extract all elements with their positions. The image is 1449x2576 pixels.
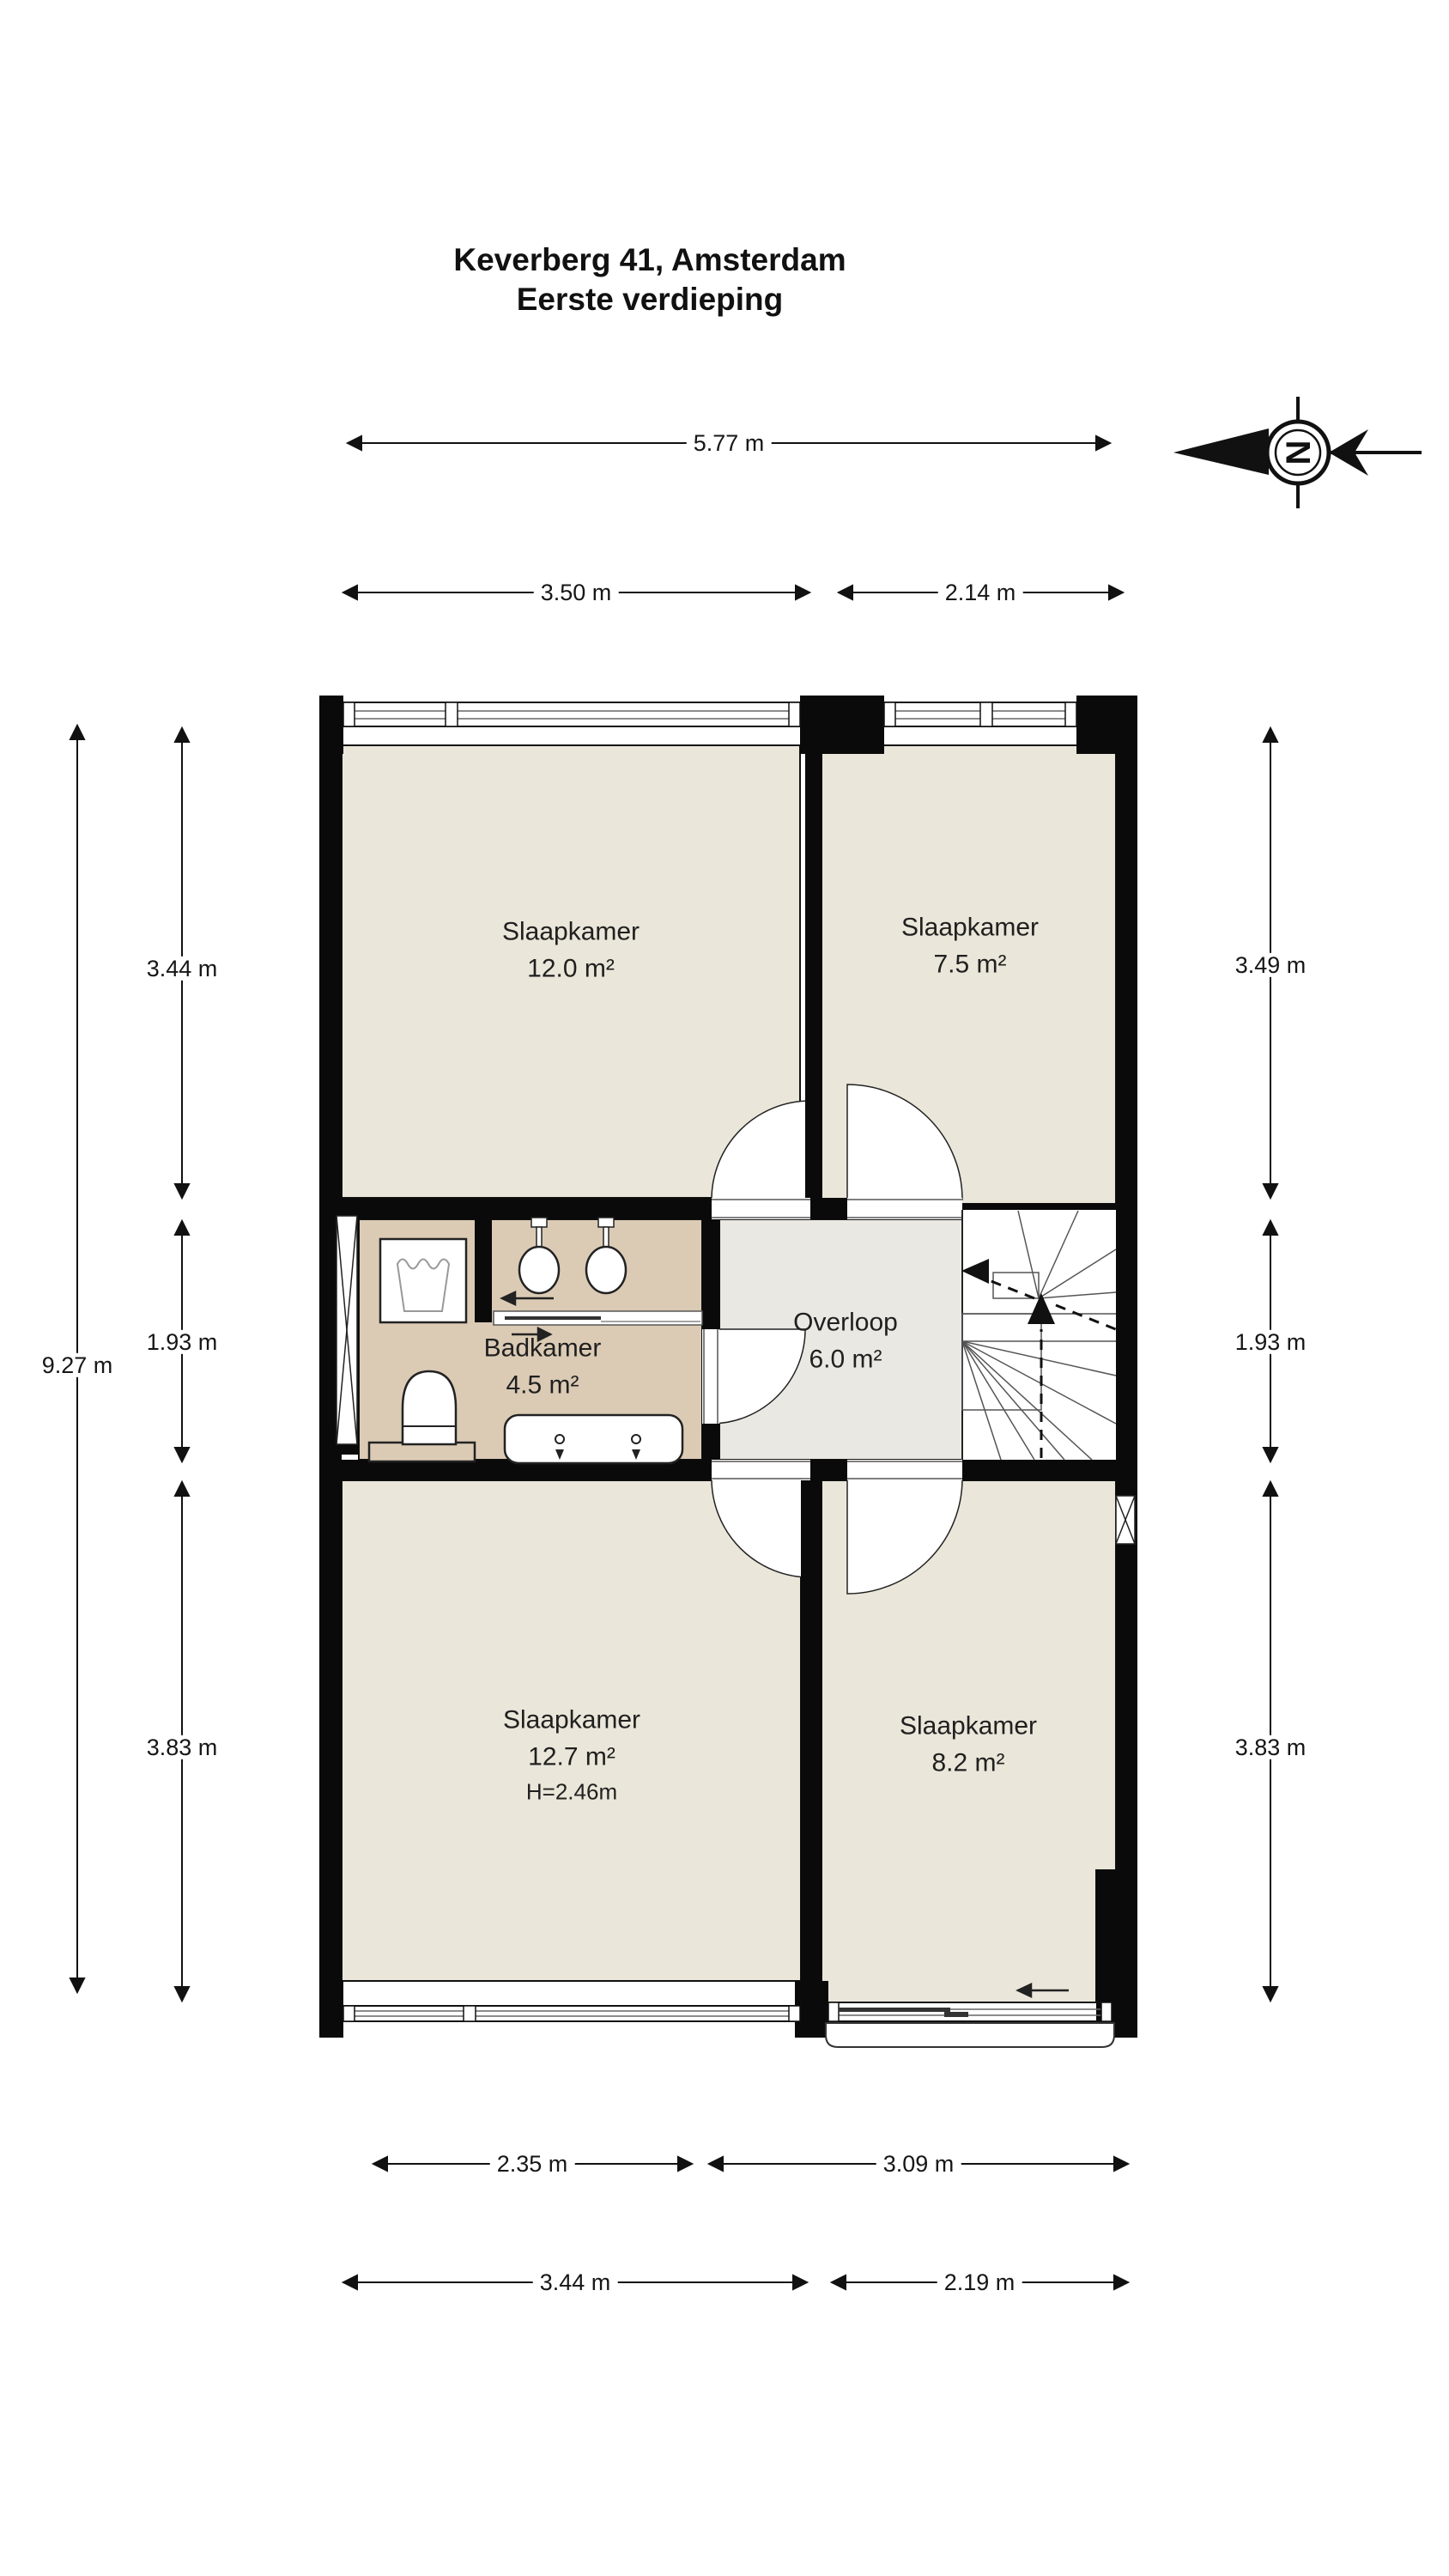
room-area-bedroom-bottom-right: 8.2 m² bbox=[931, 1749, 1004, 1777]
room-label-bedroom-top-right: Slaapkamer bbox=[901, 914, 1039, 942]
floorplan-drawing: N bbox=[0, 0, 1449, 2576]
pillar-top-middle bbox=[800, 696, 884, 754]
dim-top-right: 2.14 m bbox=[938, 580, 1023, 605]
room-area-bedroom-top-right: 7.5 m² bbox=[933, 951, 1006, 979]
wall-stairs-top-thin bbox=[962, 1204, 1116, 1210]
page-title: Keverberg 41, Amsterdam bbox=[453, 242, 846, 278]
wall-strip-top-a bbox=[342, 1198, 712, 1219]
bathtub-icon bbox=[505, 1415, 682, 1463]
wall-right bbox=[1116, 696, 1137, 1870]
pillar-bottom-left bbox=[319, 1981, 343, 2038]
room-label-bathroom: Badkamer bbox=[484, 1334, 602, 1363]
wall-bathroom-right-lower bbox=[702, 1424, 719, 1460]
room-label-bedroom-bottom-right: Slaapkamer bbox=[900, 1712, 1037, 1741]
room-area-bathroom: 4.5 m² bbox=[506, 1371, 579, 1400]
wall-strip-bottom-b bbox=[810, 1460, 847, 1480]
wall-bathroom-right-upper bbox=[702, 1219, 719, 1329]
wall-bathroom-inner bbox=[475, 1219, 492, 1322]
window-bottom-left bbox=[343, 2006, 800, 2021]
room-height-bedroom-bottom-left: H=2.46m bbox=[526, 1779, 617, 1806]
dim-right-middle: 1.93 m bbox=[1228, 1330, 1313, 1354]
wall-divider-top-bedrooms bbox=[805, 747, 822, 1198]
dim-left-middle: 1.93 m bbox=[140, 1330, 225, 1354]
bathroom-sliding-door bbox=[494, 1311, 702, 1325]
room-area-landing: 6.0 m² bbox=[809, 1346, 882, 1374]
room-label-bedroom-top-left: Slaapkamer bbox=[502, 918, 640, 946]
page-subtitle: Eerste verdieping bbox=[517, 282, 784, 318]
compass-needle-icon bbox=[1173, 428, 1269, 475]
dim-top-total: 5.77 m bbox=[687, 431, 772, 455]
dim-right-bottom: 3.83 m bbox=[1228, 1735, 1313, 1759]
dim-left-total: 9.27 m bbox=[35, 1353, 120, 1377]
dim-bottom-inner-left: 2.35 m bbox=[490, 2152, 575, 2176]
dim-left-bottom: 3.83 m bbox=[140, 1735, 225, 1759]
wall-strip-top-b bbox=[810, 1198, 847, 1219]
room-area-bedroom-top-left: 12.0 m² bbox=[527, 955, 615, 983]
floorplan-page: N Kev bbox=[0, 0, 1449, 2576]
compass-letter: N bbox=[1280, 440, 1318, 465]
room-label-bedroom-bottom-left: Slaapkamer bbox=[503, 1706, 640, 1735]
balcony-outline bbox=[826, 2023, 1114, 2047]
dim-bottom-outer-left: 3.44 m bbox=[533, 2270, 618, 2294]
pillar-top-left bbox=[319, 696, 343, 754]
toilet-plinth bbox=[369, 1443, 475, 1461]
wall-strip-bottom-c bbox=[962, 1460, 1116, 1480]
window-top-left bbox=[343, 702, 800, 726]
floor-stairs bbox=[962, 1210, 1116, 1460]
dim-top-left: 3.50 m bbox=[534, 580, 619, 605]
dim-right-top: 3.49 m bbox=[1228, 953, 1313, 977]
dim-bottom-inner-right: 3.09 m bbox=[876, 2152, 961, 2176]
compass: N bbox=[1173, 397, 1422, 508]
dim-left-top: 3.44 m bbox=[140, 957, 225, 981]
toilet-icon bbox=[403, 1371, 456, 1444]
dim-bottom-outer-right: 2.19 m bbox=[937, 2270, 1022, 2294]
pillar-top-right bbox=[1076, 696, 1137, 754]
room-label-landing: Overloop bbox=[793, 1309, 898, 1337]
sliding-door-leaf bbox=[839, 2008, 950, 2012]
wall-divider-bottom-bedrooms bbox=[801, 1480, 822, 1981]
washing-machine-icon bbox=[380, 1239, 466, 1322]
room-area-bedroom-bottom-left: 12.7 m² bbox=[528, 1743, 615, 1771]
